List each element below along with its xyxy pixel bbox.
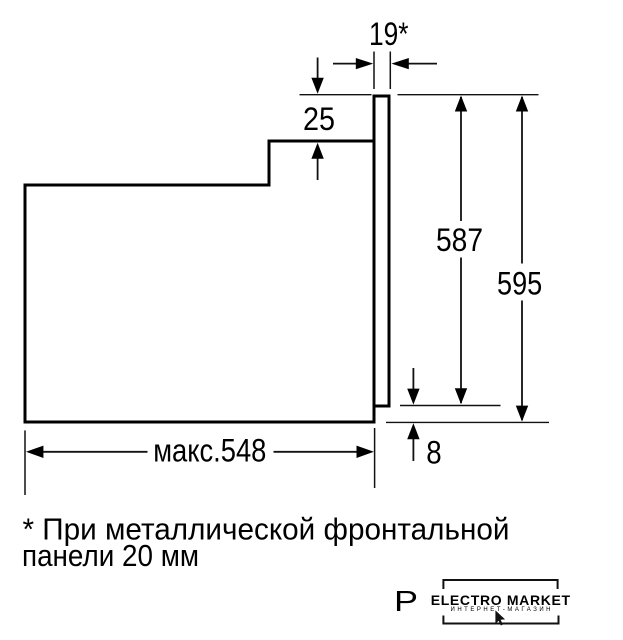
svg-text:19*: 19* (369, 16, 409, 52)
svg-text:8: 8 (426, 434, 441, 470)
svg-text:панели 20 мм: панели 20 мм (22, 539, 199, 573)
svg-text:587: 587 (436, 222, 483, 258)
svg-text:P: P (394, 586, 418, 618)
svg-text:ELECTRO MARKET: ELECTRO MARKET (431, 592, 571, 608)
svg-text:макс.548: макс.548 (153, 433, 266, 469)
svg-text:25: 25 (303, 101, 335, 137)
svg-text:595: 595 (497, 266, 542, 302)
